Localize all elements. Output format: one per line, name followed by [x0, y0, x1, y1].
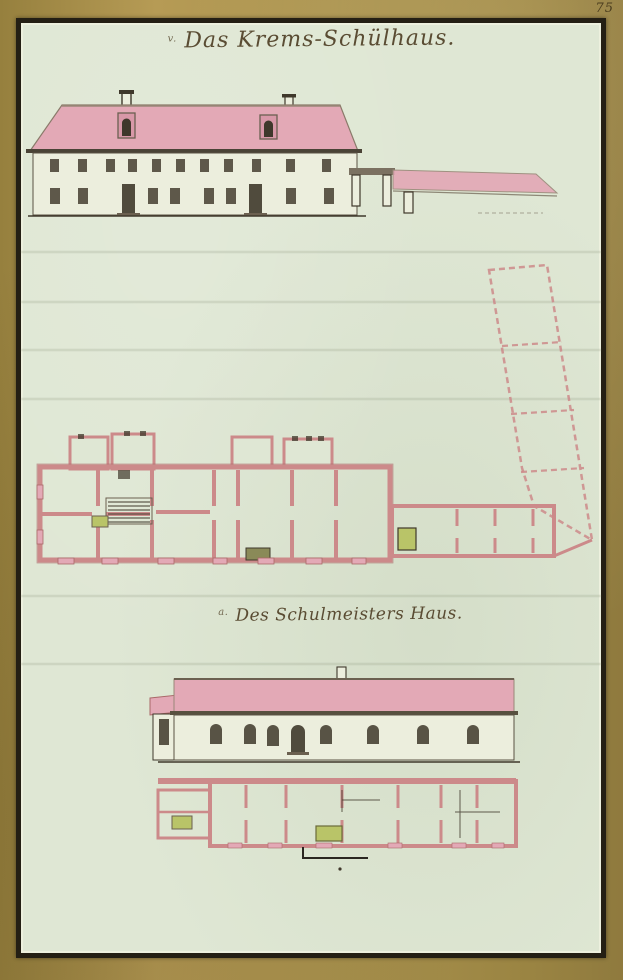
- eaves-band: [26, 149, 362, 153]
- school-elevation: [26, 90, 557, 216]
- school-roof: [30, 105, 358, 151]
- interior-walls: [40, 470, 336, 558]
- garden-wall: [393, 170, 557, 213]
- wing-stove: [398, 528, 416, 550]
- garden-gate-icon: [349, 168, 395, 206]
- annex-door-icon: [159, 719, 169, 745]
- house-stove: [316, 826, 342, 841]
- house-eaves-band: [170, 711, 518, 715]
- house-facade: [174, 715, 514, 760]
- house-plan-annex: [158, 790, 210, 838]
- house-roof: [174, 679, 514, 712]
- staircase: [106, 498, 152, 524]
- wing-rooms: [392, 506, 592, 556]
- house-elevation: [150, 667, 520, 762]
- manuscript-page: { "page": { "number": "75" }, "figures":…: [0, 0, 623, 980]
- drawings: [0, 0, 623, 980]
- courtyard-outline: [489, 265, 592, 540]
- school-floor-plan: [37, 265, 592, 564]
- annex-stove: [172, 816, 192, 829]
- plan-window-openings: [37, 485, 366, 564]
- house-plan-outer-walls: [210, 781, 516, 846]
- house-floor-plan: [158, 781, 516, 871]
- house-plan-partitions: [246, 785, 477, 843]
- cellar-stair-mark: [303, 847, 368, 871]
